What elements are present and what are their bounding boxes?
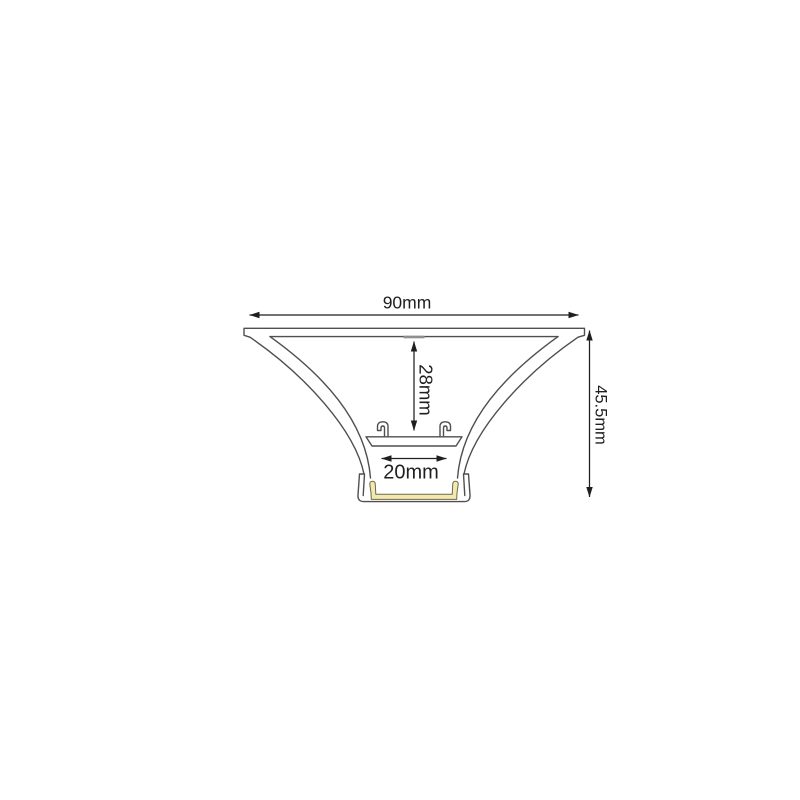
- drawing-canvas: 90mm 28mm 20mm 45.5mm: [0, 0, 800, 800]
- profile-cross-section-drawing: 90mm 28mm 20mm 45.5mm: [0, 0, 800, 800]
- dimension-label-channel-width: 20mm: [383, 462, 439, 484]
- dimension-label-inner-depth: 28mm: [416, 364, 437, 415]
- dimension-label-height-total: 45.5mm: [592, 385, 610, 445]
- cover-plate: [366, 437, 462, 446]
- dimension-label-width-total: 90mm: [383, 293, 432, 313]
- flange-center-seam-mark: [404, 336, 425, 339]
